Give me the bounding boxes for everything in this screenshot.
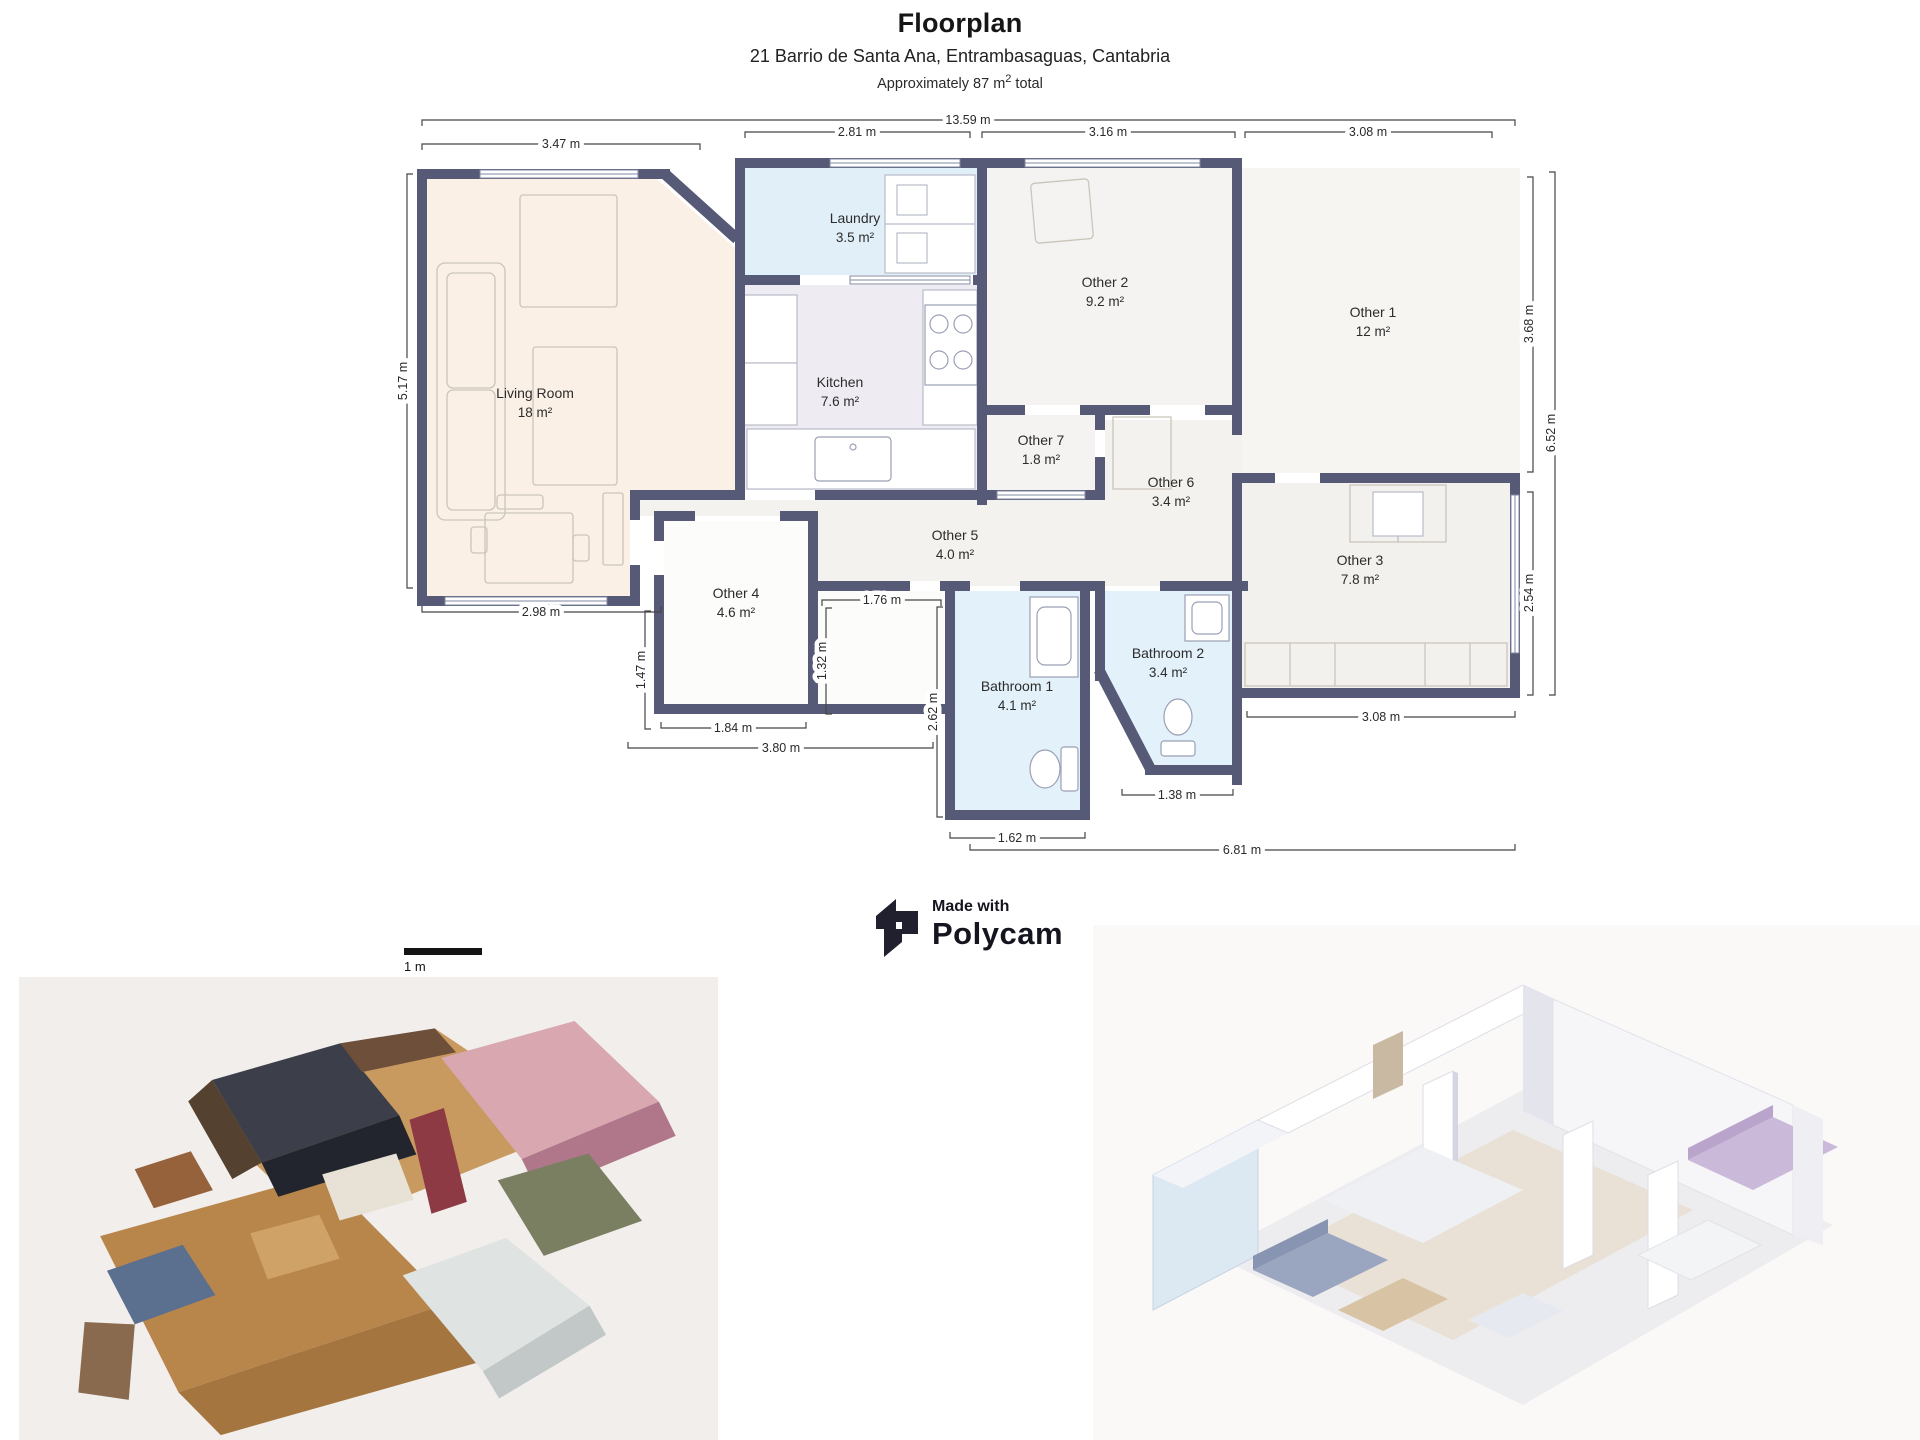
- area-other-2: 9.2 m²: [1086, 294, 1125, 309]
- dim-left-bath1: 2.62 m: [926, 693, 940, 731]
- dim-right-other1: 3.68 m: [1522, 305, 1536, 343]
- area-laundry: 3.5 m²: [836, 230, 875, 245]
- dim-bottom-other3: 3.08 m: [1362, 710, 1400, 724]
- dim-bottom-other4: 1.84 m: [714, 721, 752, 735]
- dim-top-total: 13.59 m: [945, 113, 990, 127]
- dim-left-living: 5.17 m: [396, 362, 410, 400]
- area-other-3: 7.8 m²: [1341, 572, 1380, 587]
- label-bathroom-2: Bathroom 2: [1132, 645, 1205, 661]
- dollhouse-photo: [19, 977, 718, 1440]
- scale-bar-line: [404, 948, 482, 955]
- label-other-4: Other 4: [713, 585, 760, 601]
- area-other-6: 3.4 m²: [1152, 494, 1191, 509]
- area-bathroom-2: 3.4 m²: [1149, 665, 1188, 680]
- area-other-4: 4.6 m²: [717, 605, 756, 620]
- total-area-suffix: total: [1011, 76, 1042, 92]
- area-other-5: 4.0 m²: [936, 547, 975, 562]
- area-living-room: 18 m²: [518, 405, 553, 420]
- page-title: Floorplan: [0, 8, 1920, 39]
- dim-bottom-total: 6.81 m: [1223, 843, 1261, 857]
- scale-bar-label: 1 m: [404, 959, 482, 974]
- polycam-logo-icon: [872, 898, 922, 958]
- dim-left-other4: 1.47 m: [634, 651, 648, 689]
- branding-text: Made with Polycam: [932, 898, 1063, 952]
- dim-bottom-living: 2.98 m: [522, 605, 560, 619]
- dim-inner-height: 1.32 m: [815, 642, 829, 680]
- render-3d-view: [1093, 925, 1920, 1440]
- floorplan-2d: Living Room 18 m² Laundry 3.5 m² Kitchen…: [385, 95, 1570, 885]
- total-area-line: Approximately 87 m2 total: [0, 73, 1920, 92]
- room-small: [818, 591, 945, 704]
- page: Floorplan 21 Barrio de Santa Ana, Entram…: [0, 0, 1920, 1440]
- label-other-5: Other 5: [932, 527, 979, 543]
- label-other-7: Other 7: [1018, 432, 1065, 448]
- area-other-7: 1.8 m²: [1022, 452, 1061, 467]
- scale-bar: 1 m: [404, 948, 482, 974]
- made-with-label: Made with: [932, 898, 1063, 916]
- room-other-1: [1237, 168, 1520, 473]
- dim-bottom-bath2: 1.38 m: [1158, 788, 1196, 802]
- dollhouse-photo-art: [19, 977, 718, 1440]
- label-other-6: Other 6: [1148, 474, 1195, 490]
- label-kitchen: Kitchen: [817, 374, 864, 390]
- dim-top-other1: 3.08 m: [1349, 125, 1387, 139]
- total-area-prefix: Approximately 87 m: [877, 76, 1005, 92]
- area-other-1: 12 m²: [1356, 324, 1391, 339]
- render-3d-art: [1093, 925, 1920, 1440]
- dim-right-total: 6.52 m: [1544, 414, 1558, 452]
- dim-top-living: 3.47 m: [542, 137, 580, 151]
- header: Floorplan 21 Barrio de Santa Ana, Entram…: [0, 8, 1920, 92]
- area-bathroom-1: 4.1 m²: [998, 698, 1037, 713]
- polycam-label: Polycam: [932, 916, 1063, 952]
- dim-top-other2: 3.16 m: [1089, 125, 1127, 139]
- label-other-3: Other 3: [1337, 552, 1384, 568]
- dim-bottom-bath1: 1.62 m: [998, 831, 1036, 845]
- label-other-1: Other 1: [1350, 304, 1397, 320]
- branding: Made with Polycam: [872, 898, 1063, 958]
- dim-bottom-hall: 3.80 m: [762, 741, 800, 755]
- dim-inner-width: 1.76 m: [863, 593, 901, 607]
- label-other-2: Other 2: [1082, 274, 1129, 290]
- label-laundry: Laundry: [830, 210, 881, 226]
- label-bathroom-1: Bathroom 1: [981, 678, 1054, 694]
- label-living-room: Living Room: [496, 385, 574, 401]
- laundry-machines: [885, 175, 975, 273]
- dim-top-laundry: 2.81 m: [838, 125, 876, 139]
- address-line: 21 Barrio de Santa Ana, Entrambasaguas, …: [0, 46, 1920, 67]
- area-kitchen: 7.6 m²: [821, 394, 860, 409]
- dim-right-other3: 2.54 m: [1522, 574, 1536, 612]
